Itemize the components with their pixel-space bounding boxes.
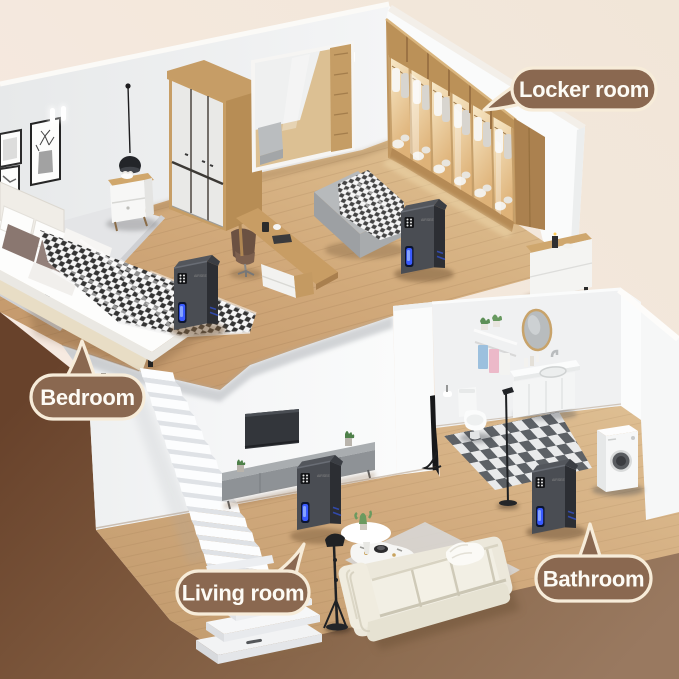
svg-text:AIRSEE: AIRSEE <box>421 218 435 222</box>
svg-text:Locker room: Locker room <box>519 77 649 102</box>
svg-text:AIRSEE: AIRSEE <box>552 478 566 482</box>
svg-text:AIRSEE: AIRSEE <box>194 274 208 278</box>
svg-text:AIRSEE: AIRSEE <box>317 474 331 478</box>
svg-text:Bedroom: Bedroom <box>40 385 134 410</box>
svg-text:Bathroom: Bathroom <box>543 566 645 591</box>
svg-text:Living room: Living room <box>182 580 305 605</box>
